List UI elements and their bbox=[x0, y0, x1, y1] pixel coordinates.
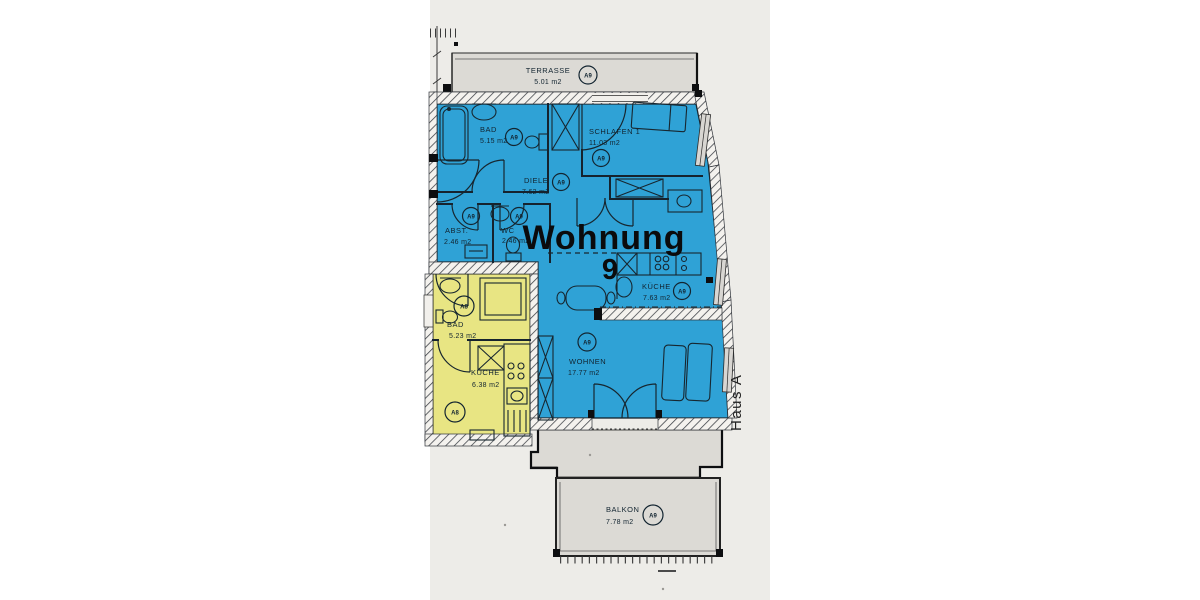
unit-badge-bad-a9-label: A9 bbox=[510, 136, 518, 142]
paper-speck bbox=[662, 588, 664, 590]
unit-badge-bad-a8-label: A8 bbox=[460, 305, 468, 311]
window-icon bbox=[424, 295, 433, 327]
room-area-abst: 2.46 m2 bbox=[444, 239, 471, 246]
room-name-balkon: BALKON bbox=[606, 505, 639, 514]
room-name-abst: ABST. bbox=[445, 226, 468, 235]
room-name-terrasse: TERRASSE bbox=[526, 66, 570, 75]
floorplan-page: TERRASSE 5.01 m2 A9 BAD 5.15 m2 A9 SCHLA… bbox=[0, 0, 1200, 600]
unit-badge-abst-label: A9 bbox=[467, 215, 475, 221]
room-area-kueche-a9: 7.63 m2 bbox=[643, 295, 670, 302]
room-name-schlafen: SCHLAFEN 1 bbox=[589, 127, 640, 136]
room-area-balkon: 7.78 m2 bbox=[606, 519, 633, 526]
room-name-diele: DIELE bbox=[524, 176, 548, 185]
unit-badge-terrasse-label: A9 bbox=[584, 74, 592, 80]
unit-badge-wohnen-label: A9 bbox=[583, 341, 591, 347]
room-name-kueche-a9: KÜCHE bbox=[642, 282, 671, 291]
room-area-terrasse: 5.01 m2 bbox=[534, 79, 561, 86]
room-area-kueche-a8: 6.38 m2 bbox=[472, 382, 499, 389]
unit-badge-diele-label: A9 bbox=[557, 181, 565, 187]
room-terrasse bbox=[443, 53, 699, 92]
room-name-bad-a9: BAD bbox=[480, 125, 497, 134]
apartment-title: Wohnung bbox=[522, 219, 685, 257]
building-label: Haus A bbox=[728, 374, 745, 431]
apartment-number: 9 bbox=[602, 254, 618, 286]
room-area-bad-a8: 5.23 m2 bbox=[449, 333, 476, 340]
lower-terrace-strip bbox=[531, 429, 722, 478]
unit-badge-schlafen-label: A9 bbox=[597, 157, 605, 163]
room-name-wohnen: WOHNEN bbox=[569, 357, 606, 366]
paper-speck bbox=[504, 524, 506, 526]
room-area-diele: 7.62 m2 bbox=[522, 189, 549, 196]
room-area-schlafen: 11.03 m2 bbox=[589, 140, 620, 147]
room-name-kueche-a8: KÜCHE bbox=[471, 368, 500, 377]
floorplan-image: TERRASSE 5.01 m2 A9 BAD 5.15 m2 A9 SCHLA… bbox=[0, 0, 1200, 600]
room-area-bad-a9: 5.15 m2 bbox=[480, 138, 507, 145]
unit-badge-kueche-a9-label: A9 bbox=[678, 290, 686, 296]
unit-badge-kueche-a8-label: A8 bbox=[451, 411, 459, 417]
room-name-wc: WC bbox=[501, 226, 515, 235]
unit-badge-balkon-label: A9 bbox=[649, 514, 657, 520]
paper-speck bbox=[589, 454, 591, 456]
room-name-bad-a8: BAD bbox=[447, 320, 464, 329]
room-area-wohnen: 17.77 m2 bbox=[568, 370, 600, 377]
